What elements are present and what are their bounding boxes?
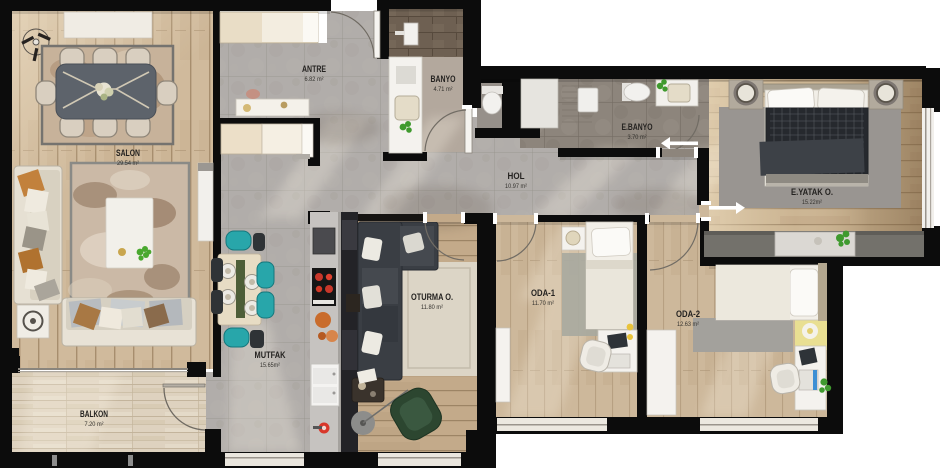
svg-text:4.71 m²: 4.71 m² — [434, 86, 454, 93]
svg-text:3.70 m²: 3.70 m² — [628, 134, 648, 141]
svg-text:12.63 m²: 12.63 m² — [677, 321, 700, 328]
svg-text:OTURMA O.: OTURMA O. — [411, 292, 453, 302]
svg-text:15.22m²: 15.22m² — [802, 199, 823, 206]
svg-text:15.65m²: 15.65m² — [260, 362, 281, 369]
svg-text:HOL: HOL — [508, 171, 525, 181]
svg-text:11.80 m²: 11.80 m² — [421, 304, 444, 311]
svg-text:SALON: SALON — [116, 148, 140, 158]
svg-text:29.54 m²: 29.54 m² — [117, 160, 140, 167]
svg-text:ODA-2: ODA-2 — [676, 309, 700, 319]
svg-text:ODA-1: ODA-1 — [531, 288, 555, 298]
svg-text:11.70 m²: 11.70 m² — [532, 300, 555, 307]
svg-text:7.20 m²: 7.20 m² — [85, 421, 105, 428]
svg-text:BANYO: BANYO — [431, 74, 456, 84]
svg-text:MUTFAK: MUTFAK — [255, 350, 286, 360]
svg-text:E.YATAK O.: E.YATAK O. — [791, 187, 833, 197]
svg-text:E.BANYO: E.BANYO — [622, 122, 653, 132]
svg-text:BALKON: BALKON — [80, 409, 108, 419]
svg-text:ANTRE: ANTRE — [302, 64, 326, 74]
svg-text:10.97 m²: 10.97 m² — [505, 183, 528, 190]
svg-text:6.82 m²: 6.82 m² — [305, 76, 325, 83]
